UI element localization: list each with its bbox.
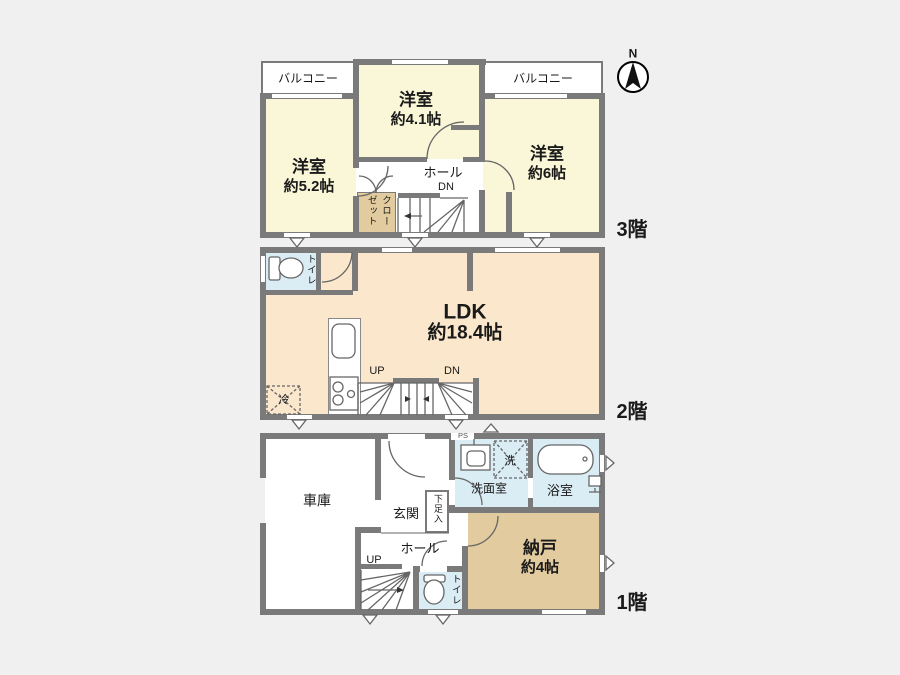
window — [524, 232, 550, 238]
room-center-size: 約4.1帖 — [391, 112, 442, 129]
closet-label: クローゼット — [362, 195, 392, 233]
floor3-label: 3階 — [616, 219, 647, 241]
garage-label: 車庫 — [303, 493, 331, 508]
window — [272, 93, 342, 99]
ldk-size: 約18.4帖 — [428, 324, 503, 345]
window — [495, 93, 567, 99]
washroom-label: 洗面室 — [471, 482, 507, 495]
washroom — [455, 438, 528, 507]
window — [445, 414, 468, 420]
stairwell2 — [359, 383, 473, 415]
toilet1-label: トイレ — [448, 574, 461, 610]
fridge-label: 冷 — [279, 394, 290, 406]
room-right-name: 洋室 — [530, 146, 564, 165]
floor2-label: 2階 — [616, 401, 647, 423]
floorplan: バルコニー バルコニー 洋室 約4.1帖 洋室 約5.2帖 洋室 約6帖 ホール… — [0, 0, 900, 675]
ldk-name: LDK — [443, 300, 486, 323]
compass-north-label: N — [629, 47, 638, 60]
stairs2-up-label: UP — [369, 365, 384, 377]
toilet2-label: トイレ — [303, 254, 316, 290]
bathroom-label: 浴室 — [547, 484, 573, 498]
shoe-cabinet-label: 下足入 — [432, 494, 442, 530]
vent-markers-3f — [290, 238, 544, 247]
room-center-name: 洋室 — [399, 92, 433, 111]
window — [402, 232, 428, 238]
room-right-size: 約6帖 — [528, 166, 566, 183]
vent-markers-2f — [292, 420, 463, 429]
window — [599, 555, 605, 572]
window — [392, 59, 448, 65]
window — [599, 455, 605, 472]
balcony-left-label: バルコニー — [278, 72, 338, 85]
entrance-opening — [388, 433, 425, 439]
floor1-label: 1階 — [616, 592, 647, 614]
hall1-label: ホール — [400, 542, 439, 556]
kitchen-counter — [328, 318, 361, 415]
washer-label: 洗 — [505, 455, 516, 467]
window — [260, 256, 266, 282]
window — [495, 247, 560, 253]
pipe-space-label: PS — [458, 432, 468, 440]
window — [284, 232, 310, 238]
stairs1-up-label: UP — [366, 554, 381, 566]
hall3-label: ホール — [423, 166, 462, 180]
storage-name: 納戸 — [523, 540, 557, 559]
balcony-right-label: バルコニー — [513, 72, 573, 85]
storage-size: 約4帖 — [521, 560, 559, 577]
window — [542, 609, 586, 615]
entrance-label: 玄関 — [393, 507, 419, 521]
room-left-size: 約5.2帖 — [284, 179, 335, 196]
window — [287, 414, 312, 420]
window — [382, 247, 412, 253]
room-left-name: 洋室 — [292, 159, 326, 178]
stairs3-dn-label: DN — [438, 181, 454, 193]
stairs2-dn-label: DN — [444, 365, 460, 377]
compass-icon — [618, 62, 648, 92]
